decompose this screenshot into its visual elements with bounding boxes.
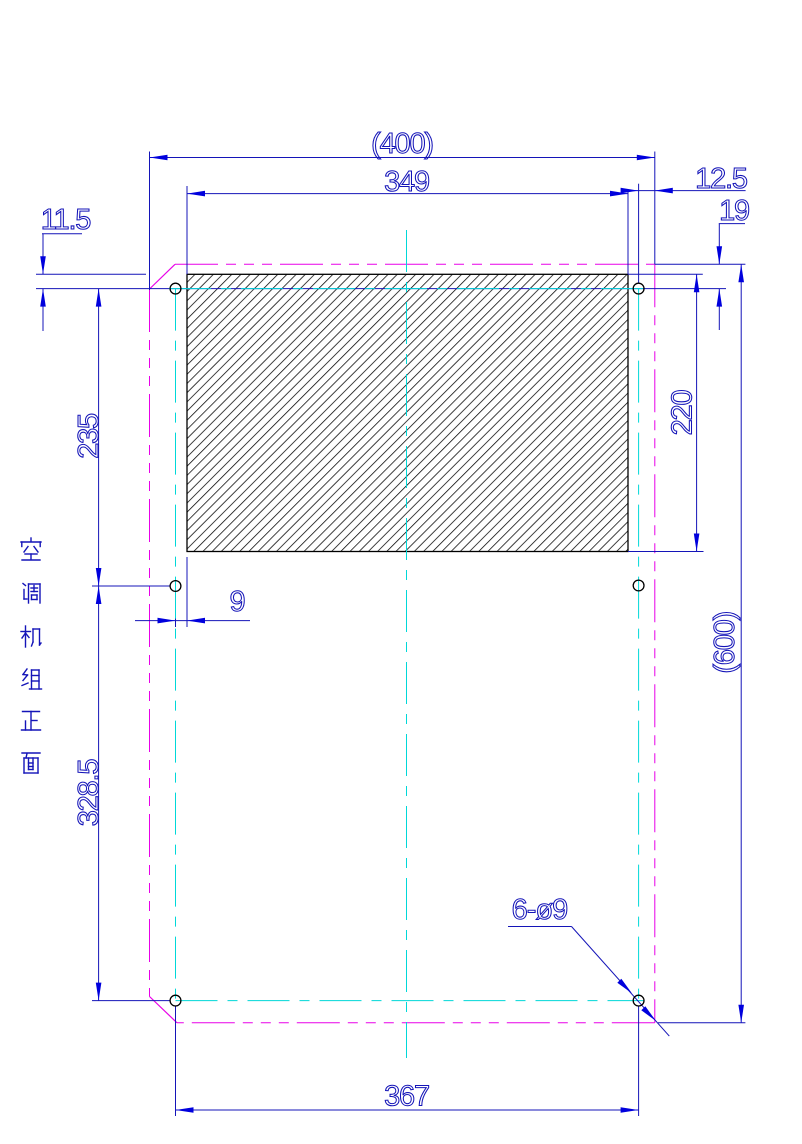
svg-text:235: 235 xyxy=(73,414,105,459)
svg-text:349: 349 xyxy=(384,166,429,198)
svg-text:19: 19 xyxy=(719,195,749,227)
svg-text:11.5: 11.5 xyxy=(41,204,91,236)
svg-text:6-ø9: 6-ø9 xyxy=(512,894,568,926)
svg-text:(400): (400) xyxy=(371,128,433,160)
svg-text:12.5: 12.5 xyxy=(695,163,747,195)
svg-text:(600): (600) xyxy=(709,612,741,674)
svg-text:367: 367 xyxy=(384,1081,429,1113)
svg-text:328.5: 328.5 xyxy=(73,760,105,827)
svg-text:9: 9 xyxy=(230,586,245,618)
svg-text:220: 220 xyxy=(667,391,699,436)
